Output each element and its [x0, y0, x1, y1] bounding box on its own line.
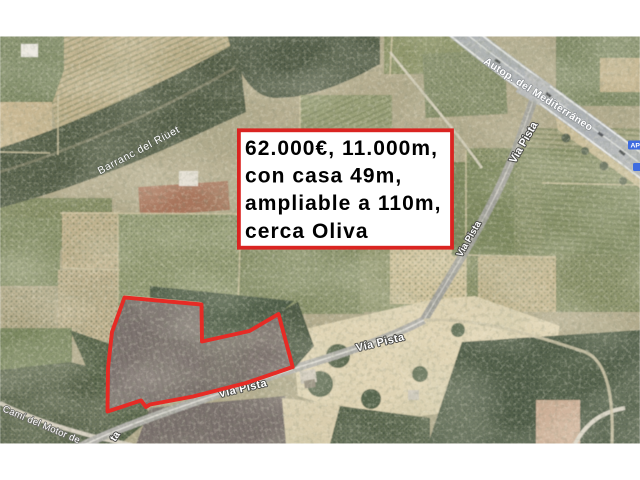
svg-text:AP-: AP- [631, 143, 640, 150]
svg-text:62.000€, 11.000m,: 62.000€, 11.000m, [245, 137, 438, 160]
svg-text:ampliable a 110m,: ampliable a 110m, [245, 192, 441, 215]
svg-text:cerca Oliva: cerca Oliva [245, 220, 369, 243]
svg-text:con casa 49m,: con casa 49m, [245, 165, 402, 188]
